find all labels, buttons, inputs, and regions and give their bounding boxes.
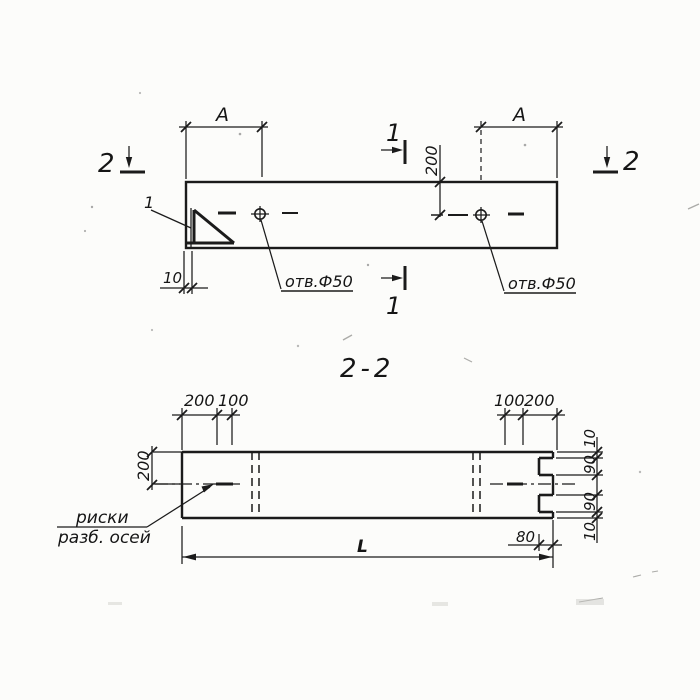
- section-1-marks: 1 1: [381, 119, 405, 320]
- dim-right-100-text: 100: [494, 391, 525, 410]
- dim-10: 10: [160, 251, 208, 294]
- dim-left-200-text: 200: [184, 391, 215, 410]
- dim-80: 80: [508, 528, 562, 551]
- dim-height-200-text: 200: [134, 450, 153, 481]
- dim-10-text: 10: [163, 269, 182, 287]
- corner-detail-triangle: 1: [144, 193, 234, 243]
- scan-noise: [84, 92, 699, 606]
- hole-callout-left: отв.Ф50: [261, 220, 353, 291]
- dim-left-100-text: 100: [218, 391, 249, 410]
- section1-bottom-label: 1: [386, 292, 401, 320]
- dim-length-text: L: [357, 537, 368, 557]
- hole-right: [431, 207, 524, 223]
- end-notches: [539, 458, 553, 512]
- dim-200-text: 200: [422, 145, 441, 176]
- dim-height-200: 200: [134, 446, 182, 490]
- section2-right-label: 2: [623, 147, 640, 177]
- hole-callout-right: отв.Ф50: [482, 221, 576, 293]
- note-line1: риски: [75, 508, 129, 528]
- hole-left: [218, 206, 298, 222]
- engineering-drawing: 1 A: [0, 0, 700, 700]
- chain-top-10-text: 10: [581, 429, 599, 448]
- dim-a-left-text: A: [214, 104, 229, 126]
- detail-1-label: 1: [144, 193, 154, 212]
- section-view: 200 100 100 200 200: [57, 391, 603, 568]
- section-title: 2-2: [340, 354, 394, 384]
- dim-right-100-200: 100 200: [494, 391, 565, 450]
- dim-chain-right: 10 90 90 10: [556, 429, 603, 543]
- beam-outline-section: [182, 452, 553, 518]
- dim-a-right-text: A: [511, 104, 526, 126]
- hole-callout-left-text: отв.Ф50: [285, 272, 353, 291]
- beam-outline-plan: [186, 182, 557, 248]
- section2-left-label: 2: [98, 149, 115, 179]
- section-2-marks: 2 2: [98, 146, 640, 179]
- dim-right-200-text: 200: [524, 391, 555, 410]
- dim-a-left: A: [179, 104, 268, 179]
- note-line2: разб. осей: [57, 528, 151, 548]
- dim-left-200-100: 200 100: [172, 391, 249, 450]
- dim-80-text: 80: [516, 528, 535, 546]
- top-view: 1 A: [98, 104, 640, 320]
- drawing-sheet: 1 A: [0, 0, 700, 700]
- section1-top-label: 1: [386, 119, 401, 147]
- chain-bottom-90-text: 90: [581, 492, 599, 511]
- dim-a-right: A: [474, 104, 563, 180]
- hidden-hole-lines: [252, 452, 480, 518]
- axis-marks-note: риски разб. осей: [57, 484, 214, 548]
- chain-bottom-10-text: 10: [581, 522, 599, 541]
- hole-callout-right-text: отв.Ф50: [508, 274, 576, 293]
- chain-top-90-text: 90: [581, 455, 599, 474]
- dim-length-L: L: [182, 520, 553, 568]
